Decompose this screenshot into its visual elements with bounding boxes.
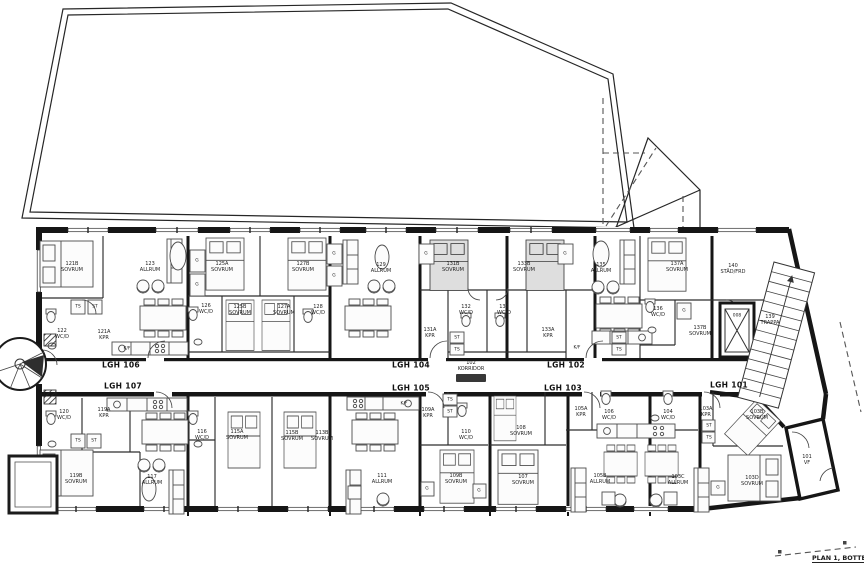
floor-plan-canvas: LGH 106 LGH 104 LGH 102 LGH 107 LGH 105 … <box>0 0 864 577</box>
floor-plan-drawing <box>0 0 864 577</box>
furniture <box>40 238 781 514</box>
entrance-vestibule <box>786 419 838 499</box>
drawing-title: PLAN 1, BOTTENPLAN <box>812 554 864 563</box>
west-terrace <box>9 456 57 513</box>
bay-roof-outline <box>603 98 700 231</box>
spiral-staircase <box>0 334 56 404</box>
elevator <box>720 303 754 357</box>
corridor-reference-badge <box>456 374 486 382</box>
roof-outline <box>22 3 634 228</box>
